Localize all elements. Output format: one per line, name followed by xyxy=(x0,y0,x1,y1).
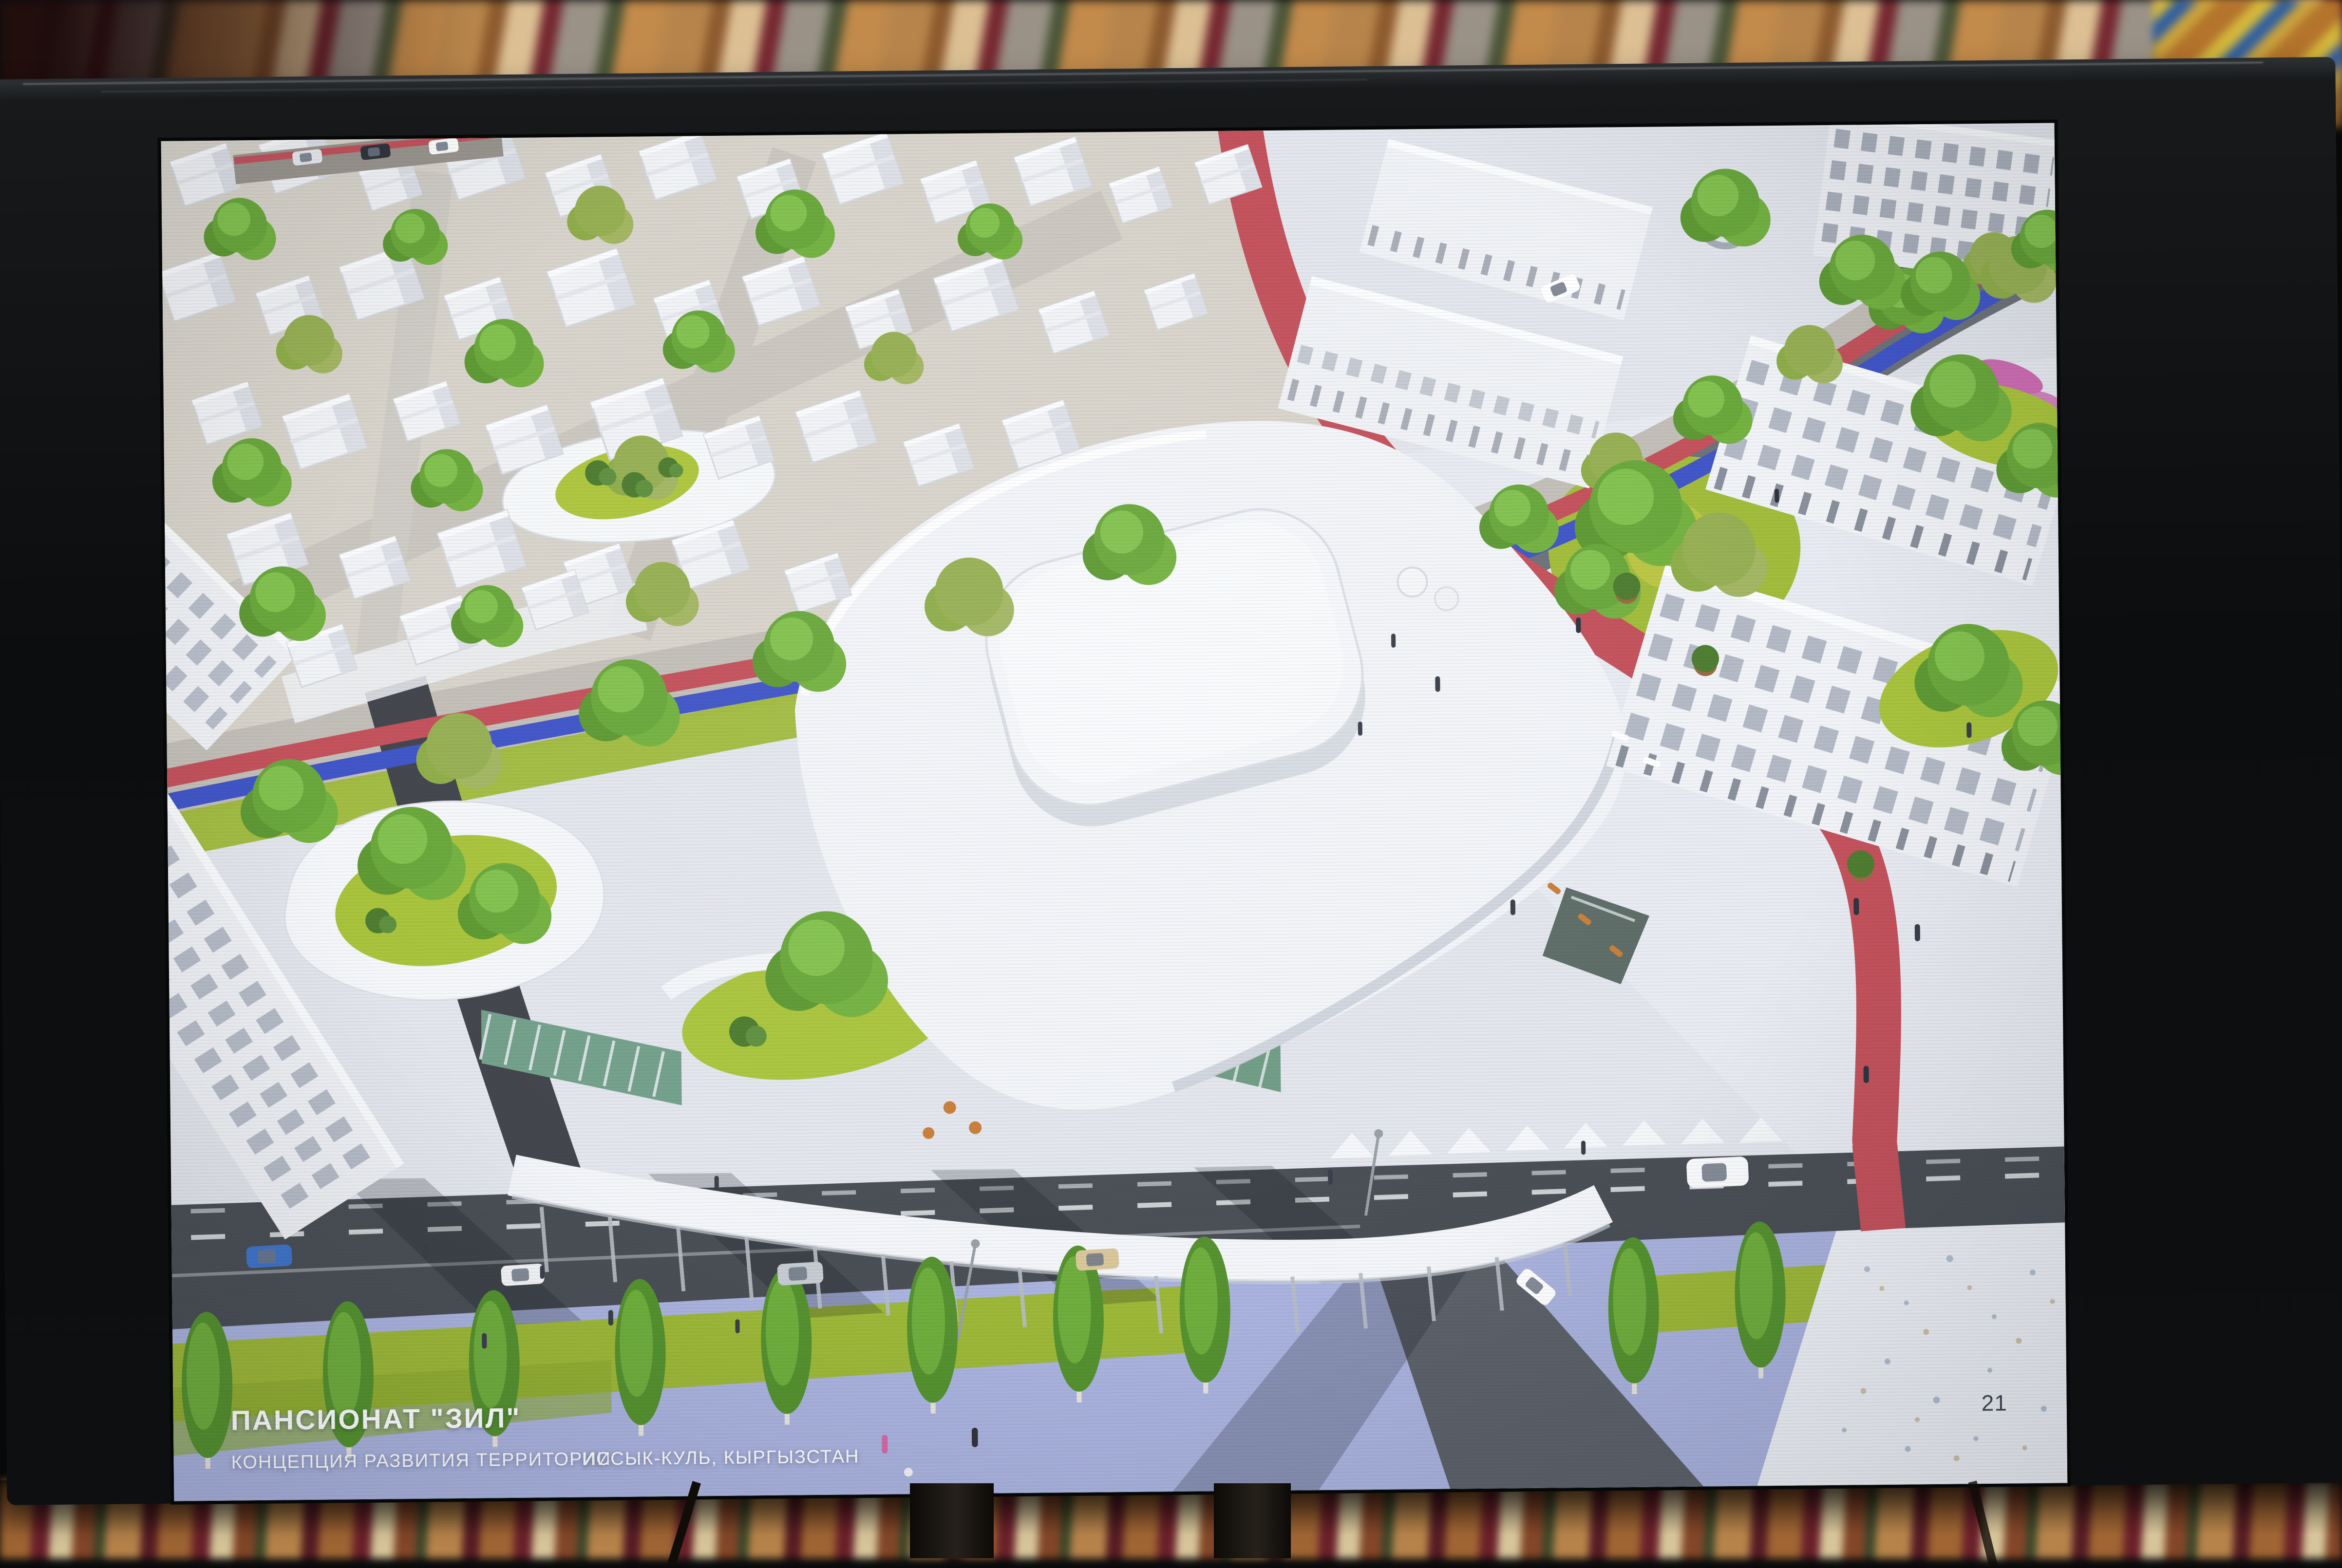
screen-vignette xyxy=(161,123,2068,1501)
stand-pole xyxy=(1214,1483,1291,1558)
stand-pole xyxy=(910,1483,994,1558)
presentation-slide: ПАНСИОНАТ "ЗИЛ" КОНЦЕПЦИЯ РАЗВИТИЯ ТЕРРИ… xyxy=(161,123,2068,1501)
tv-display: ПАНСИОНАТ "ЗИЛ" КОНЦЕПЦИЯ РАЗВИТИЯ ТЕРРИ… xyxy=(0,23,2342,1506)
